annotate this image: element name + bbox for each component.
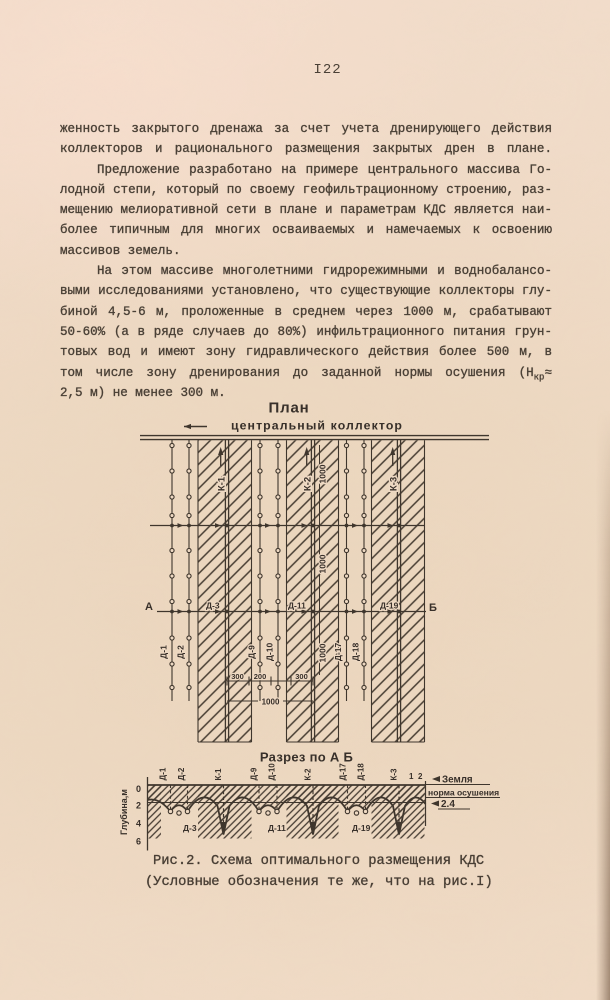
svg-text:Д-2: Д-2 — [176, 645, 186, 659]
svg-text:Д-18: Д-18 — [357, 763, 366, 781]
svg-text:2.4: 2.4 — [441, 799, 455, 810]
svg-text:Д-19: Д-19 — [380, 601, 399, 611]
svg-text:Д-11: Д-11 — [288, 601, 306, 611]
svg-text:1000: 1000 — [318, 464, 328, 483]
svg-text:4: 4 — [136, 819, 141, 829]
svg-text:Д-17: Д-17 — [333, 643, 343, 662]
svg-text:1000: 1000 — [318, 554, 328, 573]
svg-text:К-2: К-2 — [304, 768, 313, 781]
svg-text:1: 1 — [409, 772, 414, 781]
svg-text:К-3: К-3 — [390, 768, 399, 781]
svg-text:1000: 1000 — [318, 643, 328, 662]
svg-text:Д-1: Д-1 — [159, 767, 168, 780]
svg-text:300: 300 — [231, 672, 244, 681]
svg-text:Д-17: Д-17 — [339, 763, 348, 781]
svg-text:Д-9: Д-9 — [247, 645, 257, 659]
svg-text:Д-3: Д-3 — [206, 601, 220, 611]
svg-text:А: А — [145, 601, 153, 613]
svg-text:Д-9: Д-9 — [250, 767, 259, 780]
svg-text:2: 2 — [136, 801, 141, 811]
svg-text:Б: Б — [429, 602, 437, 614]
svg-text:К-2: К-2 — [303, 477, 314, 491]
svg-text:6: 6 — [136, 837, 141, 847]
svg-text:Д-1: Д-1 — [159, 645, 169, 659]
svg-text:0: 0 — [136, 784, 141, 794]
svg-text:План: План — [269, 400, 310, 417]
svg-text:Разрез по А Б: Разрез по А Б — [260, 750, 353, 765]
svg-text:Земля: Земля — [442, 775, 473, 786]
svg-text:норма осушения: норма осушения — [428, 788, 499, 798]
svg-text:200: 200 — [254, 672, 267, 681]
svg-text:К-1: К-1 — [217, 476, 228, 491]
svg-text:Д-10: Д-10 — [265, 643, 275, 662]
svg-text:центральный коллектор: центральный коллектор — [231, 419, 403, 433]
svg-text:Д-19: Д-19 — [352, 823, 371, 833]
svg-text:2: 2 — [418, 772, 423, 781]
svg-text:К-1: К-1 — [214, 768, 223, 781]
svg-text:300: 300 — [295, 672, 308, 681]
svg-text:Глубина,м: Глубина,м — [119, 789, 129, 835]
svg-text:Д-10: Д-10 — [268, 763, 277, 781]
svg-text:Д-18: Д-18 — [351, 643, 361, 662]
svg-text:1000: 1000 — [262, 698, 280, 707]
svg-text:К-3: К-3 — [389, 477, 400, 491]
svg-text:Д-11: Д-11 — [268, 823, 286, 833]
svg-text:Д-2: Д-2 — [177, 767, 186, 780]
svg-text:Д-3: Д-3 — [183, 823, 197, 833]
